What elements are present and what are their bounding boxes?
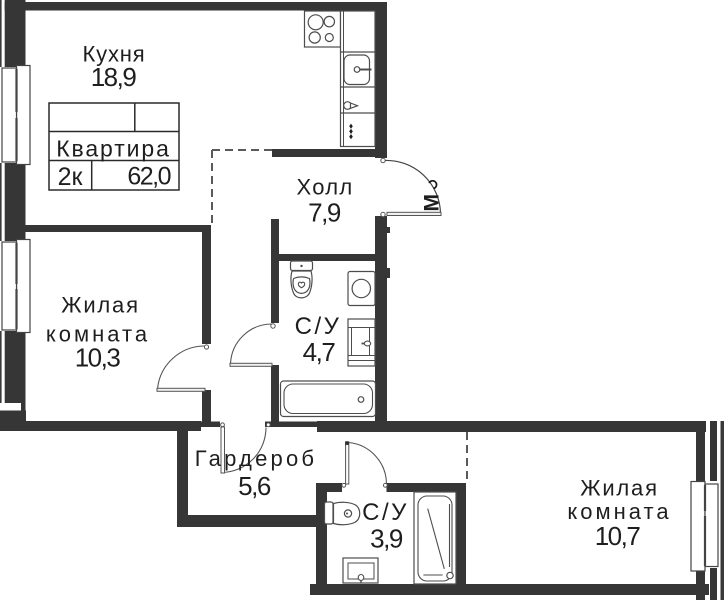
svg-text:3,9: 3,9 xyxy=(370,524,403,554)
svg-text:62,0: 62,0 xyxy=(127,163,170,191)
svg-text:7,9: 7,9 xyxy=(308,198,341,228)
svg-text:Жилая: Жилая xyxy=(61,293,140,318)
svg-text:2к: 2к xyxy=(58,163,84,191)
svg-text:Жилая: Жилая xyxy=(580,476,659,501)
svg-text:С/У: С/У xyxy=(295,313,342,340)
svg-text:18,9: 18,9 xyxy=(91,62,137,92)
svg-text:Квартира: Квартира xyxy=(56,136,171,162)
svg-text:Гардероб: Гардероб xyxy=(195,446,317,471)
svg-text:5,6: 5,6 xyxy=(238,471,271,501)
svg-text:М: М xyxy=(421,194,444,212)
svg-text:4,7: 4,7 xyxy=(303,337,336,367)
svg-text:Холл: Холл xyxy=(296,175,353,200)
svg-text:С/У: С/У xyxy=(362,499,409,526)
svg-text:10,3: 10,3 xyxy=(75,342,121,372)
svg-text:10,7: 10,7 xyxy=(595,521,641,551)
